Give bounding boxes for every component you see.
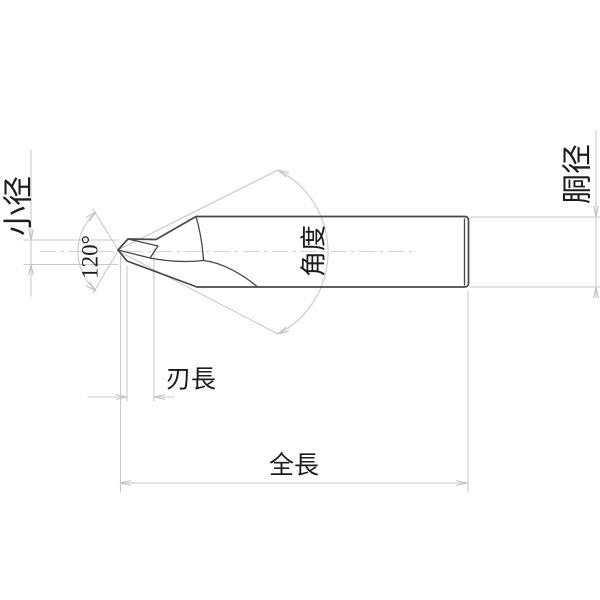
label-taper-angle: 角度 bbox=[300, 225, 329, 277]
label-overall-length: 全長 bbox=[269, 452, 319, 480]
cone-base-edge bbox=[196, 217, 204, 261]
taper-angle-line-lower bbox=[120, 252, 278, 334]
pilot-chisel-face bbox=[118, 239, 158, 258]
label-body-diameter: 胴径 bbox=[562, 144, 595, 204]
dim-body-diameter: 胴径 bbox=[471, 130, 600, 298]
label-flute-length: 刃長 bbox=[166, 367, 216, 394]
flute-curve bbox=[150, 258, 257, 287]
label-point-angle: 120° bbox=[78, 235, 103, 279]
technical-drawing-canvas: 小径 120° 角度 胴径 bbox=[0, 0, 600, 600]
taper-angle-line-upper bbox=[120, 170, 278, 249]
label-small-diameter: 小径 bbox=[3, 176, 36, 236]
center-drill-drawing: 小径 120° 角度 胴径 bbox=[0, 0, 600, 600]
